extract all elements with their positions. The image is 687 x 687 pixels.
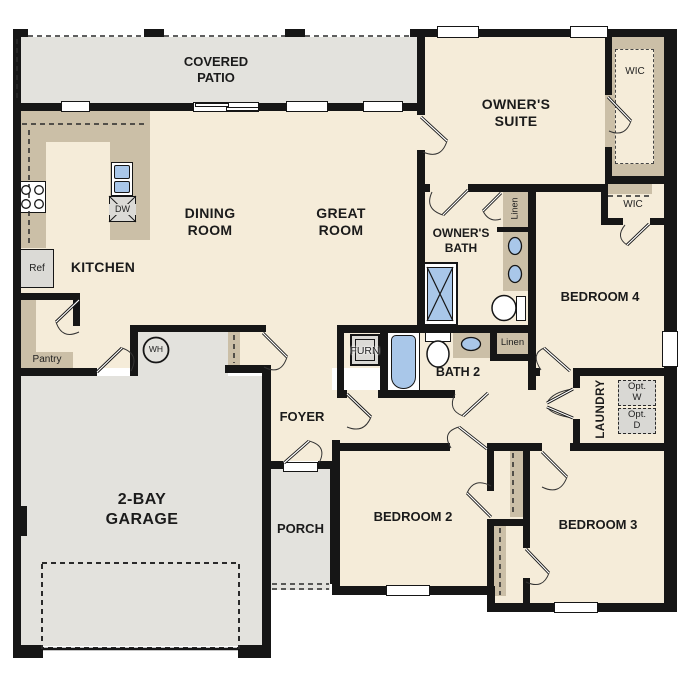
window (437, 26, 479, 38)
window (386, 585, 430, 596)
label-foyer: FOYER (272, 409, 332, 425)
shower-pan (427, 267, 453, 321)
label-bedroom3: BEDROOM 3 (533, 516, 663, 533)
label-dining-room: DINING ROOM (162, 205, 258, 239)
label-linen-hall: Linen (497, 337, 528, 349)
wall (487, 519, 530, 526)
sink-basin-top (114, 165, 130, 179)
wall (73, 293, 80, 326)
wall (13, 29, 21, 658)
wall (570, 443, 665, 451)
label-great-room: GREAT ROOM (294, 205, 388, 239)
wall (13, 293, 80, 300)
wall (130, 325, 138, 376)
patio-post (144, 29, 164, 37)
patio-post (13, 29, 28, 37)
closet-bedroom2-shelf (510, 451, 523, 517)
bedroom4-wic-shelf (608, 184, 652, 194)
wall (605, 37, 612, 95)
wall (528, 368, 540, 376)
label-dishwasher: DW (109, 204, 136, 215)
wall (523, 443, 530, 526)
wall (468, 184, 605, 192)
wall (262, 365, 271, 647)
window (61, 101, 90, 112)
wall (417, 29, 425, 115)
window (662, 331, 678, 367)
label-garage: 2-BAY GARAGE (60, 487, 224, 533)
label-bath2: BATH 2 (426, 365, 490, 380)
wall (605, 176, 664, 184)
wall (337, 325, 530, 333)
label-laundry: LAUNDRY (594, 374, 608, 444)
wall (601, 184, 608, 225)
wall (487, 443, 494, 491)
window (363, 101, 403, 112)
wall (380, 333, 387, 390)
wall (417, 184, 430, 192)
stove-icon (18, 181, 46, 213)
wall (573, 368, 665, 376)
label-bedroom2: BEDROOM 2 (348, 508, 478, 525)
wall (130, 325, 266, 332)
wall (664, 29, 677, 612)
wall (13, 645, 43, 658)
owners-vanity (503, 231, 528, 291)
label-owners-bath: OWNER'S BATH (423, 226, 499, 256)
label-owners-wic: WIC (613, 66, 657, 79)
wall (21, 506, 27, 536)
label-porch: PORCH (273, 521, 328, 536)
label-linen-owners: Linen (509, 182, 522, 236)
label-kitchen: KITCHEN (64, 259, 142, 276)
sliding-door-panel (195, 103, 229, 107)
wall (490, 354, 536, 361)
wall (650, 218, 664, 225)
wall (523, 578, 530, 603)
wall (573, 419, 580, 443)
window (286, 101, 328, 112)
patio-post (285, 29, 305, 37)
toilet-tank-owners (516, 296, 526, 321)
wall (378, 390, 455, 398)
wall (330, 469, 338, 584)
label-water-heater: WH (143, 344, 169, 355)
wall (337, 390, 347, 398)
label-furnace: FURN (342, 345, 388, 357)
floor-plan: COVERED PATIO DINING ROOM GREAT ROOM KIT… (0, 0, 687, 687)
sink-basin-bottom (114, 181, 130, 193)
label-opt-washer: Opt. W (618, 381, 656, 405)
wall (332, 443, 450, 451)
front-door-threshold (283, 462, 318, 472)
kitchen-counter-top (21, 111, 150, 142)
label-refrigerator: Ref (20, 263, 54, 275)
label-bedroom4-wic: WIC (611, 199, 655, 212)
wall (487, 443, 542, 451)
wall (225, 365, 271, 373)
label-owners-suite: OWNER'S SUITE (453, 95, 579, 131)
sliding-door-panel (226, 107, 259, 111)
toilet-tank-bath2 (425, 332, 451, 342)
window (554, 602, 598, 613)
window (570, 26, 608, 38)
closet-bedroom3-shelf (494, 526, 506, 596)
wall (337, 325, 344, 397)
wall (238, 645, 271, 658)
wall (523, 526, 530, 548)
floor-foyer (262, 332, 332, 461)
label-opt-dryer: Opt. D (618, 409, 656, 433)
label-bedroom4: BEDROOM 4 (538, 289, 662, 305)
bath2-vanity (453, 332, 490, 358)
pantry-shelf-left (21, 300, 36, 352)
wall (13, 368, 97, 376)
wall (608, 218, 623, 225)
wall (318, 461, 336, 469)
wall (573, 376, 580, 388)
label-pantry: Pantry (20, 354, 74, 366)
floor-coat-closet (238, 332, 262, 365)
tub-basin (391, 335, 416, 389)
wall (605, 147, 612, 184)
label-covered-patio: COVERED PATIO (150, 53, 282, 87)
coat-closet-shelf (228, 332, 240, 365)
